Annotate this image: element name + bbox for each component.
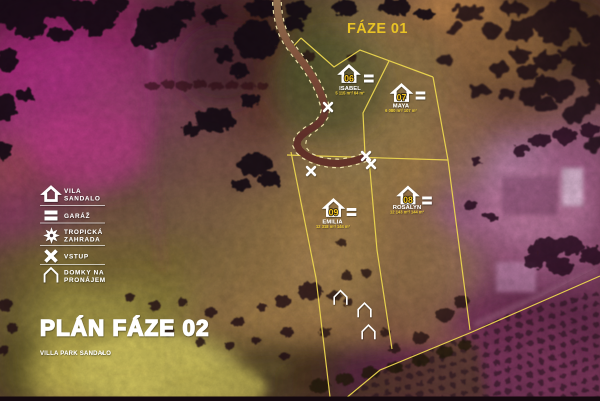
svg-text:5 115 m²/ 64 m²: 5 115 m²/ 64 m² [335, 91, 365, 96]
svg-text:12 143 m²/ 144 m²: 12 143 m²/ 144 m² [390, 210, 425, 215]
svg-text:FÁZE 01: FÁZE 01 [347, 20, 408, 37]
svg-text:06: 06 [344, 74, 354, 84]
svg-text:DOMKY NA: DOMKY NA [64, 269, 104, 276]
svg-text:6 080 m²/ 107 m²: 6 080 m²/ 107 m² [385, 108, 417, 113]
svg-text:GARÁŽ: GARÁŽ [64, 211, 90, 220]
svg-text:PRONÁJEM: PRONÁJEM [64, 275, 106, 284]
svg-text:VSTUP: VSTUP [64, 253, 89, 260]
svg-text:07: 07 [397, 93, 407, 103]
svg-text:ZAHRADA: ZAHRADA [64, 236, 101, 243]
svg-text:12 318 m²/ 144 m²: 12 318 m²/ 144 m² [316, 224, 351, 229]
svg-text:›: › [101, 350, 103, 357]
svg-text:SANDALO: SANDALO [64, 196, 101, 203]
svg-text:VILA: VILA [64, 188, 81, 195]
svg-text:08: 08 [403, 195, 413, 205]
svg-text:TROPICKÁ: TROPICKÁ [64, 227, 103, 236]
svg-text:PLÁN FÁZE 02: PLÁN FÁZE 02 [40, 316, 210, 341]
svg-text:09: 09 [329, 208, 339, 218]
